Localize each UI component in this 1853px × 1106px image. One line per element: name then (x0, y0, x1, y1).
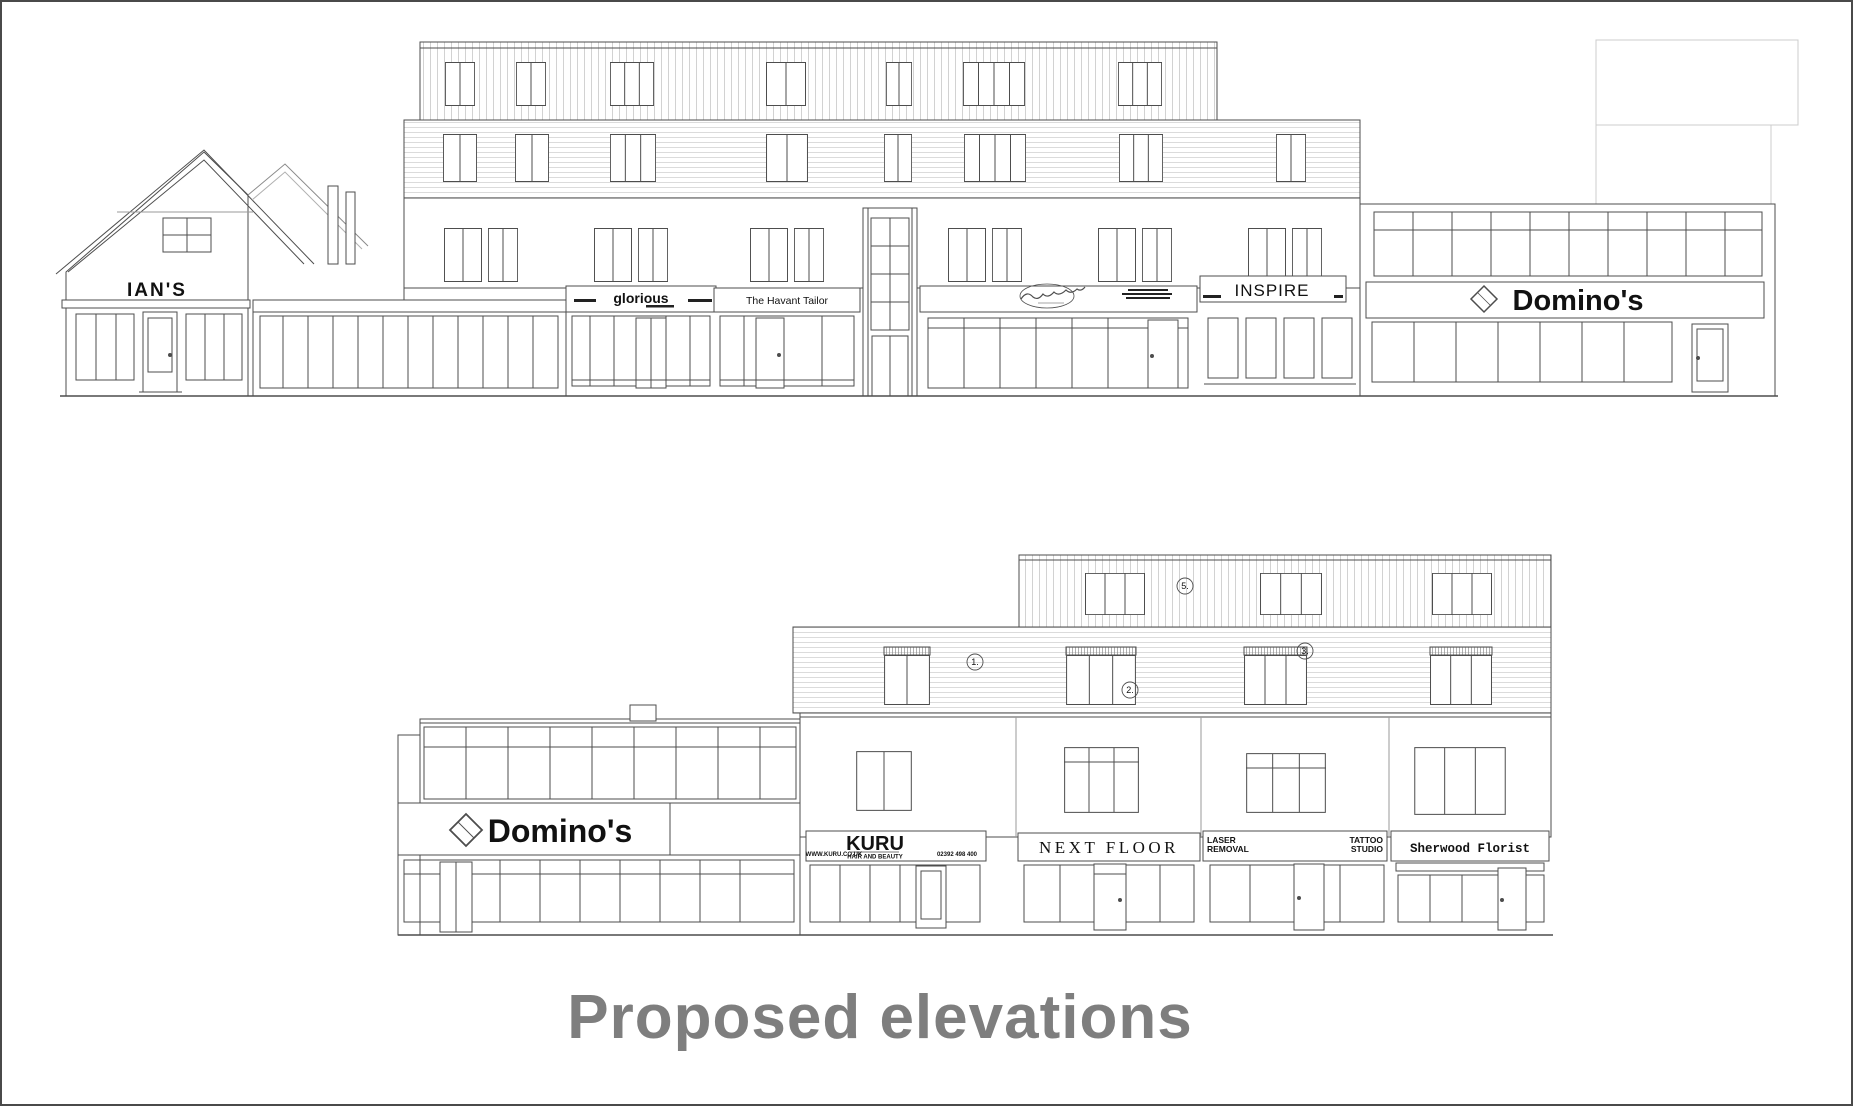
ians-canopy (62, 300, 250, 308)
tattoo-sign-line2: STUDIO (1351, 844, 1384, 854)
annotation-1: 1. (971, 657, 979, 667)
drawing-sheet: IAN'S (0, 0, 1853, 1106)
elevations-drawing: IAN'S (0, 0, 1853, 1106)
kuru-website: WWW.KURU.CO.UK (806, 852, 863, 858)
florist-sign: Sherwood Florist (1410, 842, 1530, 856)
next-floor-sign: NEXT FLOOR (1039, 838, 1179, 857)
parade-building-bottom: 1. 2. 3. 5. KURU (793, 555, 1551, 930)
script-salon-door (1148, 320, 1178, 388)
havant-door (756, 318, 784, 388)
laser-tattoo-shop: LASER REMOVAL TATTOO STUDIO (1203, 831, 1387, 930)
inspire-sign: INSPIRE (1234, 281, 1309, 300)
havant-tailor-sign: The Havant Tailor (746, 295, 829, 307)
annotation-3: 3. (1301, 646, 1309, 656)
laser-sign-line2: REMOVAL (1207, 844, 1249, 854)
top-elevation: IAN'S (56, 40, 1798, 396)
sheet-title: Proposed elevations (430, 982, 1330, 1053)
kuru-phone: 02392 498 400 (937, 852, 978, 858)
dominos-sign-top: Domino's (1513, 285, 1644, 317)
next-floor-shop: NEXT FLOOR (1018, 833, 1200, 930)
dominos-sign-bottom: Domino's (488, 813, 633, 849)
sherwood-florist-shop: Sherwood Florist (1391, 831, 1549, 930)
bottom-elevation: Domino's (398, 555, 1553, 935)
connector-shops (253, 300, 566, 396)
ians-sign: IAN'S (127, 280, 187, 301)
background-building-outline (1596, 40, 1798, 215)
dominos-building-bottom: Domino's (398, 705, 800, 935)
annotation-5: 5. (1181, 581, 1189, 591)
annotation-2: 2. (1126, 685, 1134, 695)
central-bay (863, 208, 917, 396)
script-salon-small-print-marks (1122, 289, 1172, 299)
kuru-shop: KURU HAIR AND BEAUTY WWW.KURU.CO.UK 0239… (806, 831, 986, 928)
glorious-sign: glorious (613, 290, 668, 306)
dominos-building-top: Domino's (1360, 204, 1775, 396)
